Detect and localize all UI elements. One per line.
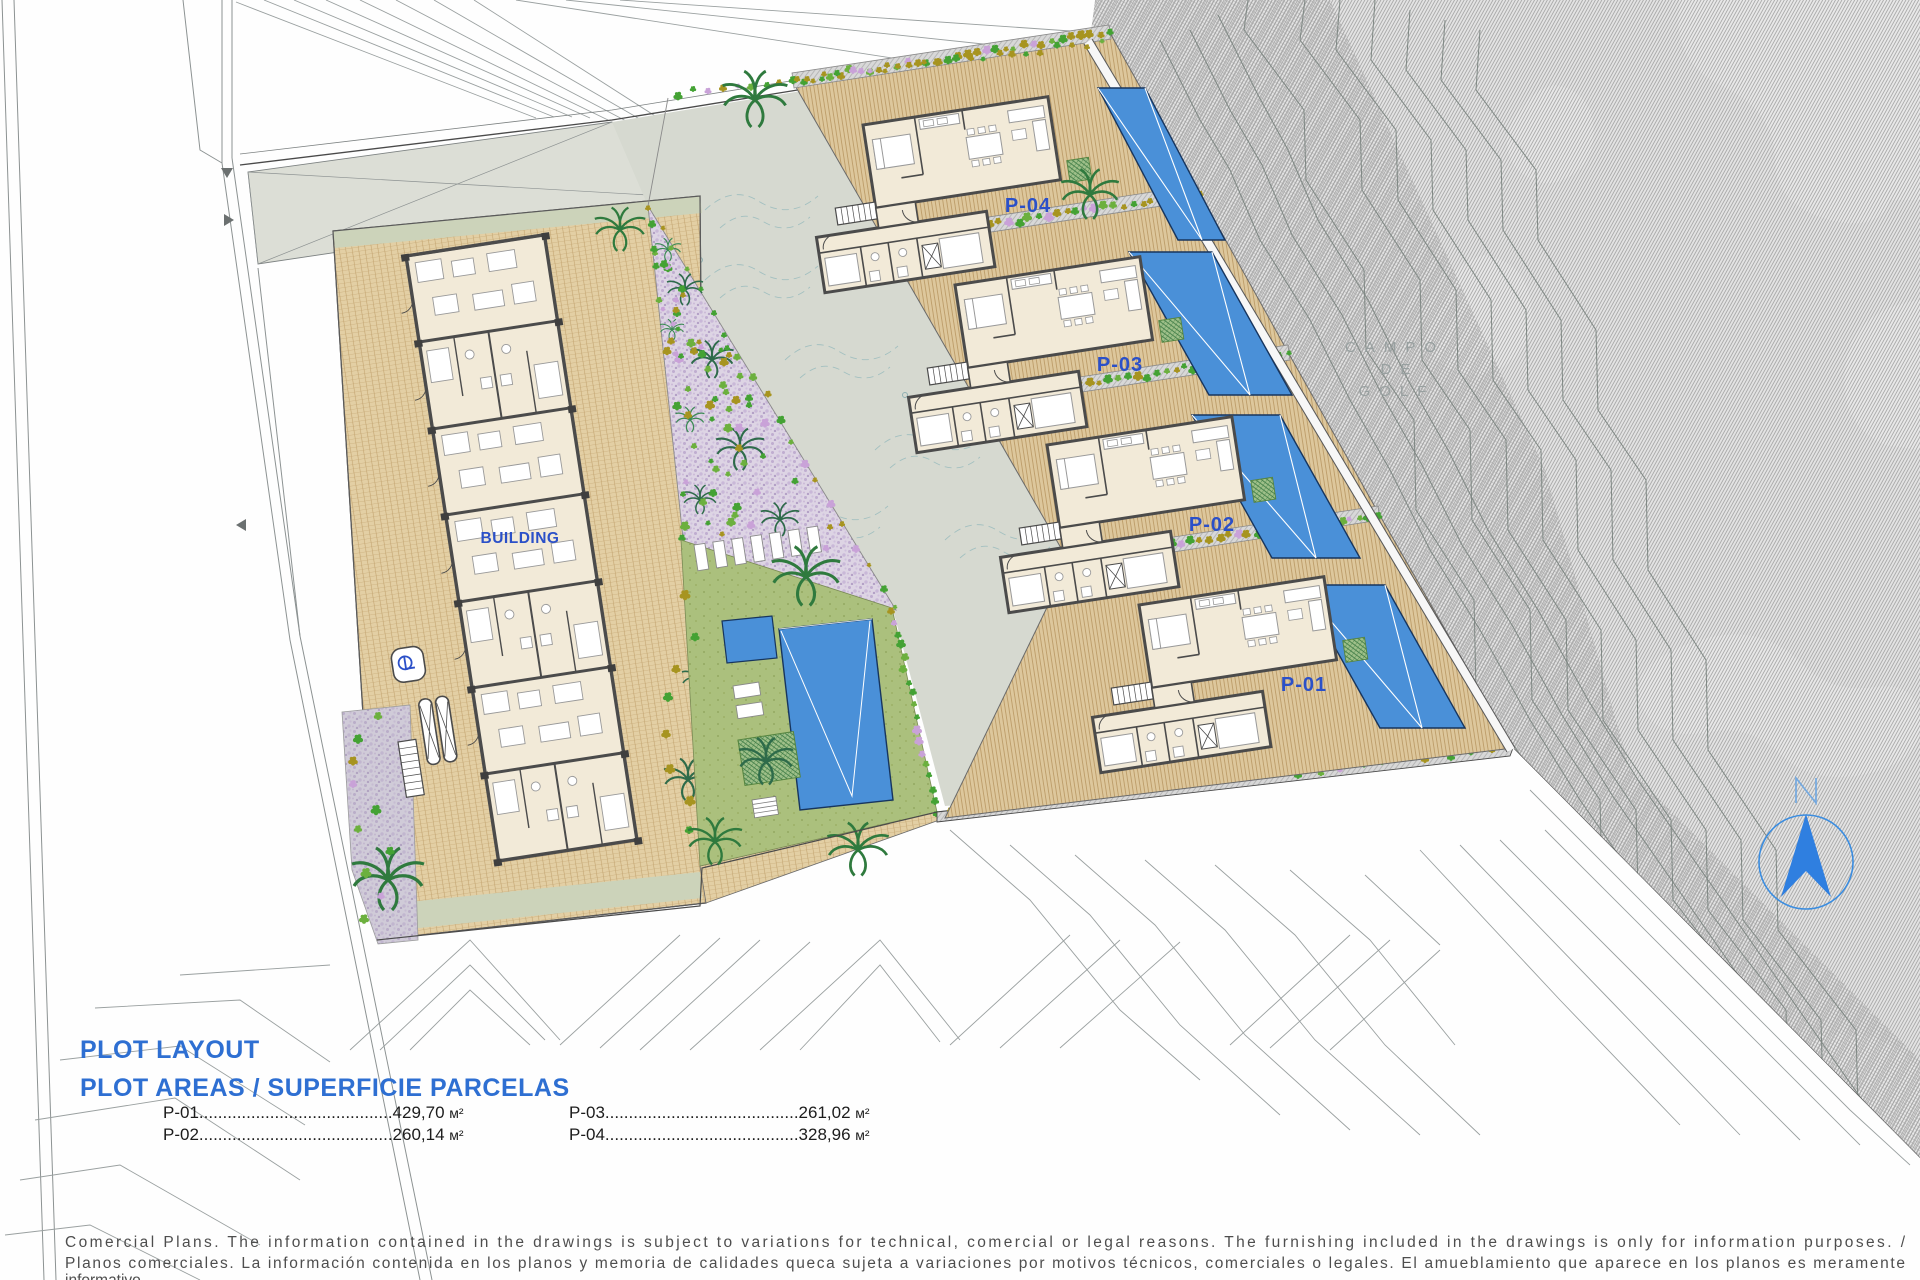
svg-text:P-03: P-03 [1097,354,1143,376]
svg-text:PLOT LAYOUT: PLOT LAYOUT [80,1036,260,1064]
svg-text:P-02: P-02 [1189,514,1235,536]
svg-text:GOLF: GOLF [1359,383,1436,400]
svg-text:CAMPO: CAMPO [1345,339,1445,356]
svg-text:P-01..........................: P-01....................................… [163,1103,464,1122]
svg-text:P-04: P-04 [1005,195,1051,217]
svg-text:DE: DE [1381,361,1420,378]
svg-text:P-04..........................: P-04....................................… [569,1125,870,1144]
svg-text:P-03..........................: P-03....................................… [569,1103,870,1122]
svg-text:BUILDING: BUILDING [481,530,560,547]
svg-text:P-01: P-01 [1281,674,1327,696]
svg-text:P-02..........................: P-02....................................… [163,1125,464,1144]
svg-text:informativo.: informativo. [65,1272,145,1280]
svg-text:PLOT AREAS / SUPERFICIE PARCEL: PLOT AREAS / SUPERFICIE PARCELAS [80,1074,570,1102]
svg-text:Planos comerciales. La informa: Planos comerciales. La información conte… [65,1255,1905,1272]
